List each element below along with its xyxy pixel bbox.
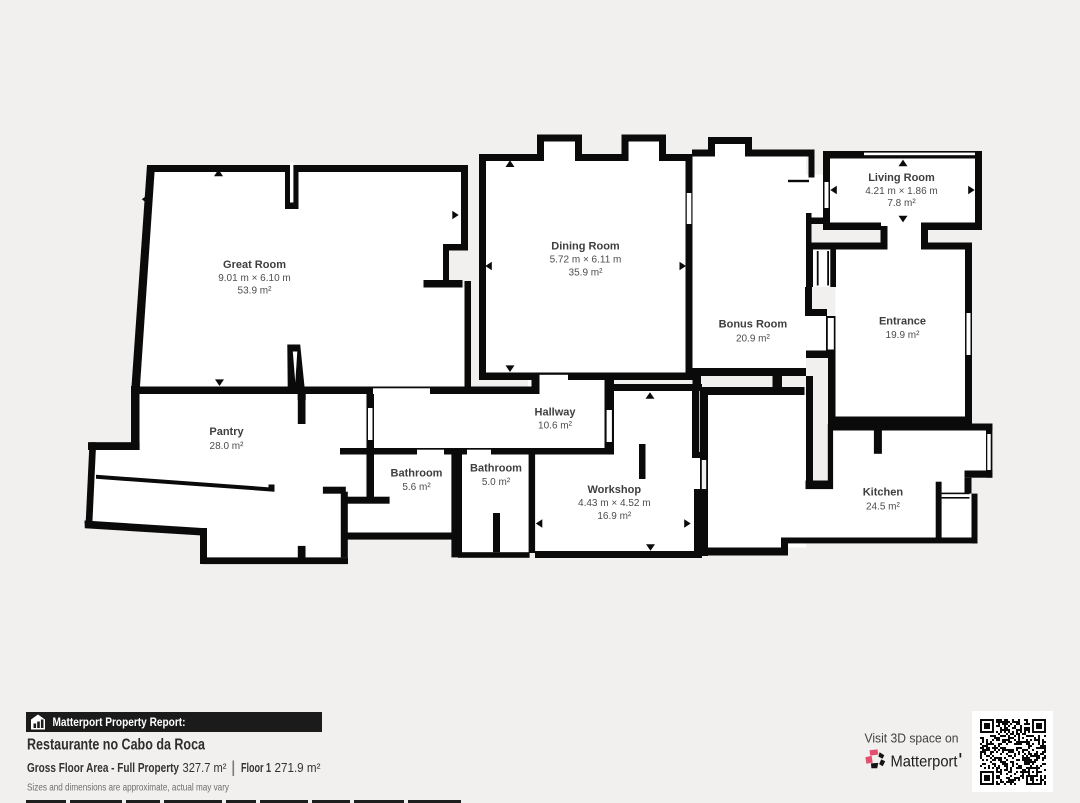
svg-text:5.6 m²: 5.6 m² [402, 482, 431, 493]
svg-text:Visit 3D space on: Visit 3D space on [865, 731, 959, 746]
svg-text:327.7 m²: 327.7 m² [183, 760, 228, 775]
svg-text:Great Room: Great Room [223, 259, 286, 271]
svg-text:Kitchen: Kitchen [863, 487, 904, 499]
svg-text:Gross Floor Area - Full Proper: Gross Floor Area - Full Property [27, 760, 180, 775]
svg-text:Bonus Room: Bonus Room [719, 319, 788, 331]
svg-text:9.01 m × 6.10 m: 9.01 m × 6.10 m [218, 273, 291, 284]
svg-text:16.9 m²: 16.9 m² [597, 511, 632, 522]
svg-text:Bathroom: Bathroom [391, 468, 443, 480]
svg-text:35.9 m²: 35.9 m² [569, 268, 604, 279]
svg-text:4.21 m × 1.86 m: 4.21 m × 1.86 m [865, 186, 938, 197]
svg-text:5.0 m²: 5.0 m² [482, 477, 511, 488]
svg-text:24.5 m²: 24.5 m² [866, 502, 901, 513]
svg-text:Living Room: Living Room [868, 172, 935, 184]
svg-text:Matterport Property Report:: Matterport Property Report: [53, 717, 186, 729]
svg-text:Restaurante no Cabo da Roca: Restaurante no Cabo da Roca [27, 737, 205, 754]
svg-text:7.8 m²: 7.8 m² [887, 198, 916, 209]
svg-text:10.6 m²: 10.6 m² [538, 421, 573, 432]
svg-text:53.9 m²: 53.9 m² [238, 286, 273, 297]
svg-text:Workshop: Workshop [588, 484, 642, 496]
svg-text:Sizes and dimensions are appro: Sizes and dimensions are approximate, ac… [27, 783, 229, 794]
svg-text:28.0 m²: 28.0 m² [210, 441, 245, 452]
svg-text:20.9 m²: 20.9 m² [736, 334, 771, 345]
svg-text:19.9 m²: 19.9 m² [886, 330, 921, 341]
svg-text:5.72 m × 6.11 m: 5.72 m × 6.11 m [550, 255, 622, 266]
svg-text:Dining Room: Dining Room [551, 241, 620, 253]
svg-text:271.9 m²: 271.9 m² [275, 760, 322, 775]
svg-text:Floor 1: Floor 1 [241, 760, 271, 775]
svg-text:Entrance: Entrance [879, 316, 926, 328]
svg-text:4.43 m × 4.52 m: 4.43 m × 4.52 m [578, 498, 651, 509]
svg-text:Matterport: Matterport [891, 754, 959, 771]
svg-text:Hallway: Hallway [535, 407, 577, 419]
svg-text:Bathroom: Bathroom [470, 463, 522, 475]
svg-text:Pantry: Pantry [209, 426, 244, 438]
